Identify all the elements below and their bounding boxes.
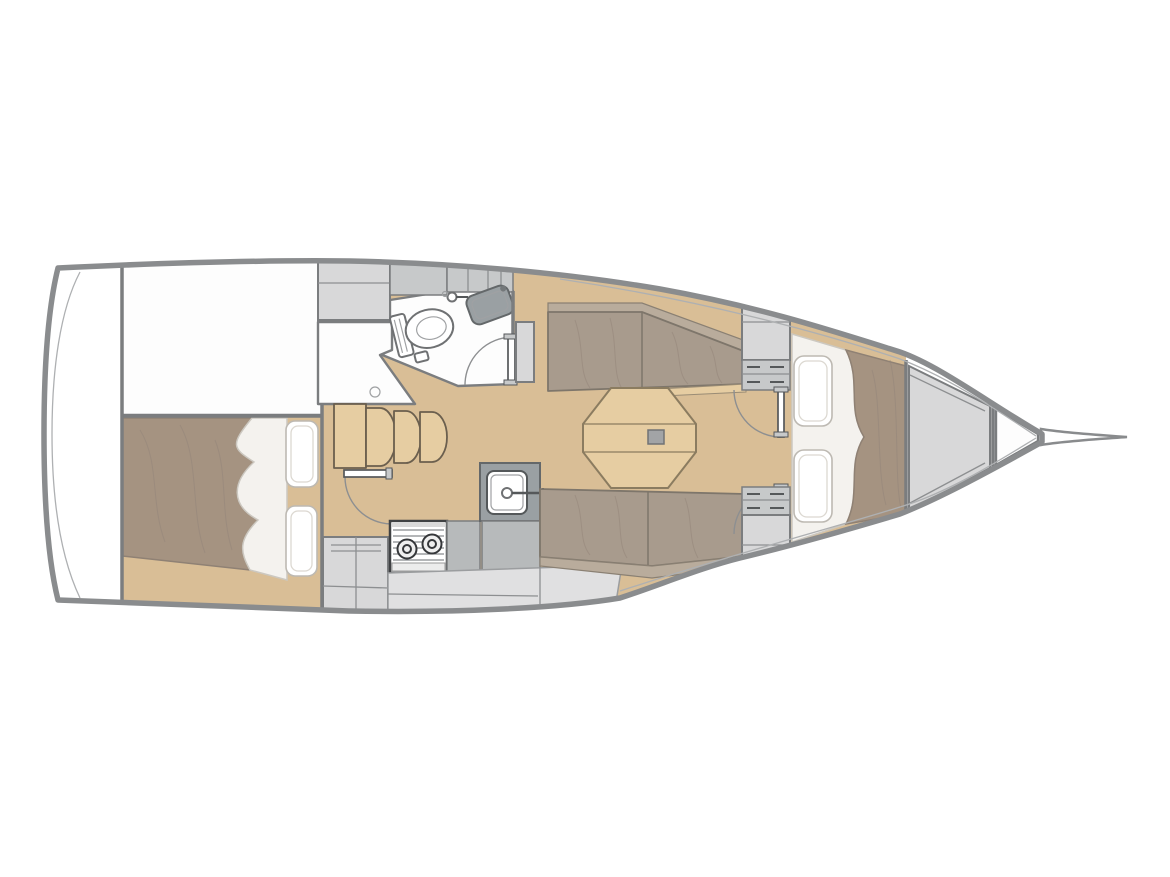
galley-counter-mid bbox=[447, 521, 480, 572]
floor-plan bbox=[0, 0, 1170, 877]
port-settee-cushion bbox=[540, 489, 746, 566]
technical-space bbox=[122, 258, 322, 415]
aft-cabin bbox=[122, 415, 325, 625]
toilet-paper-holder bbox=[414, 351, 429, 363]
burner-center bbox=[403, 545, 411, 553]
aft-cabin-door bbox=[344, 470, 392, 477]
burner-center bbox=[428, 540, 436, 548]
sink-faucet bbox=[502, 488, 512, 498]
fwd-upper-drawers bbox=[742, 360, 790, 390]
technical-room bbox=[122, 258, 322, 415]
fwd-lower-drawers bbox=[742, 487, 790, 515]
bowsprit bbox=[1041, 429, 1127, 445]
steps-platform bbox=[334, 404, 366, 468]
head-wardrobe bbox=[318, 259, 390, 320]
companionway-steps bbox=[334, 404, 447, 468]
table-top bbox=[583, 388, 696, 488]
boat-plan-svg bbox=[0, 0, 1170, 877]
aft-berth-duvet bbox=[236, 418, 287, 580]
saloon-table bbox=[583, 388, 696, 488]
door-hinge bbox=[774, 432, 788, 437]
bow-compartments bbox=[906, 360, 1038, 518]
galley-sink-module bbox=[480, 463, 543, 570]
stove-icon bbox=[390, 521, 447, 573]
door-hinge bbox=[386, 468, 392, 479]
door-hinge bbox=[774, 387, 788, 392]
fwd-cabin-door-top bbox=[778, 390, 784, 437]
table-leg bbox=[648, 430, 664, 444]
faucet-icon bbox=[448, 293, 457, 302]
step bbox=[394, 411, 421, 463]
step bbox=[366, 408, 396, 466]
step bbox=[420, 412, 447, 462]
head-side-locker bbox=[516, 322, 534, 382]
head-door bbox=[508, 336, 515, 384]
sink-lower-panel bbox=[482, 521, 540, 570]
stove-rail bbox=[392, 522, 445, 527]
oven-front bbox=[392, 563, 445, 571]
